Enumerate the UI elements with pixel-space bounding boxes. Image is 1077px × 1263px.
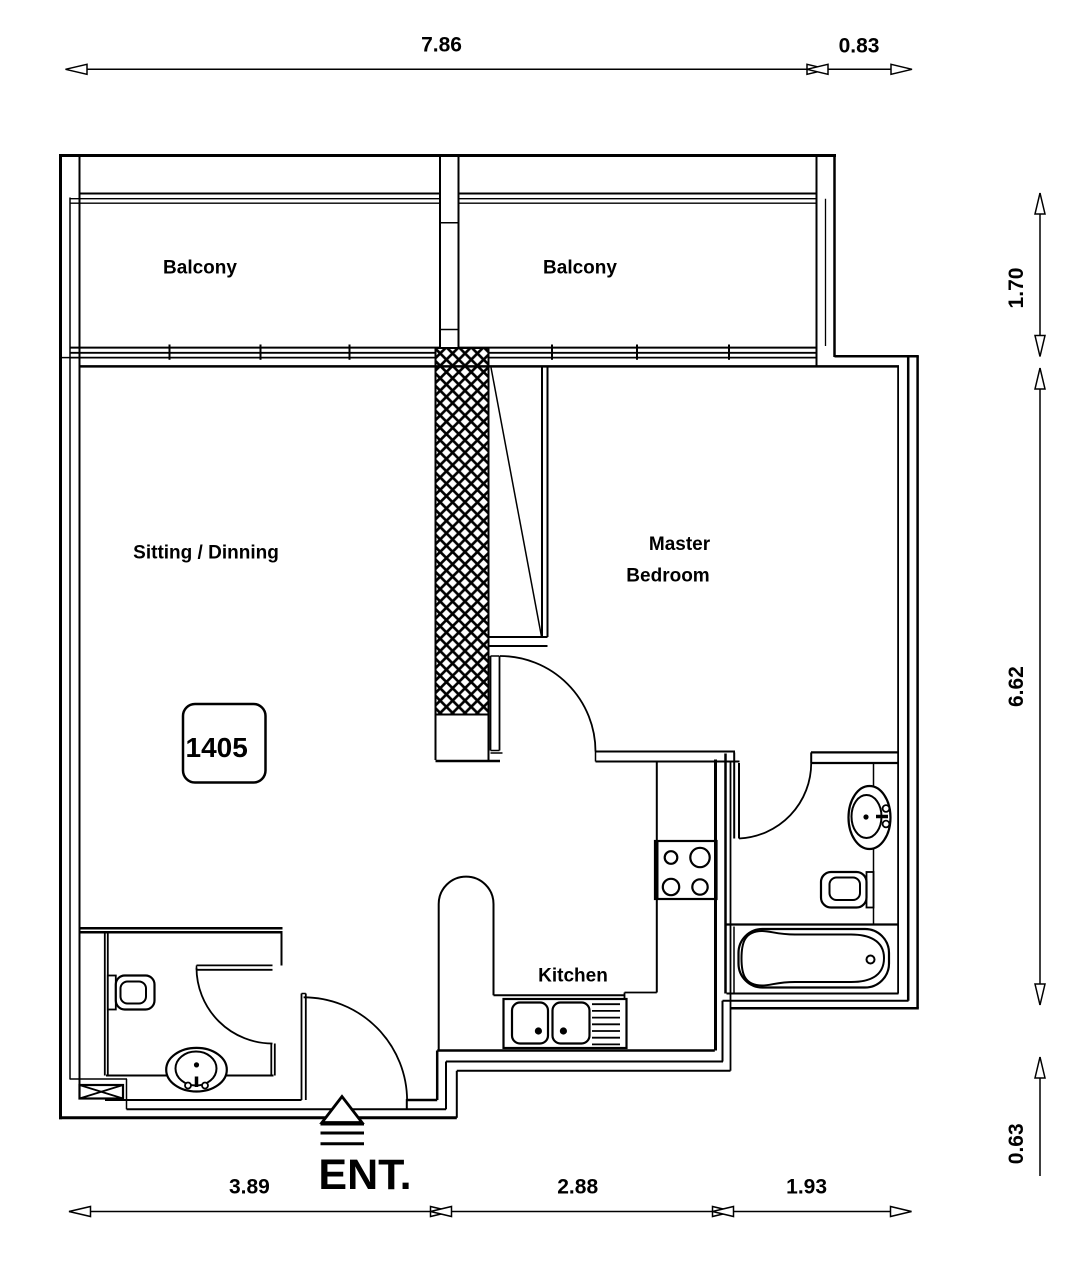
svg-text:Balcony: Balcony [543, 257, 617, 278]
svg-text:1405: 1405 [186, 732, 248, 763]
svg-text:2.88: 2.88 [557, 1176, 598, 1199]
svg-text:0.83: 0.83 [839, 35, 880, 58]
svg-text:ENT.: ENT. [318, 1151, 411, 1199]
svg-text:6.62: 6.62 [1005, 666, 1028, 707]
svg-text:7.86: 7.86 [421, 34, 462, 57]
svg-text:Bedroom: Bedroom [626, 566, 709, 587]
svg-text:1.93: 1.93 [786, 1176, 827, 1199]
svg-text:Master: Master [649, 534, 711, 555]
svg-text:Sitting / Dinning: Sitting / Dinning [133, 543, 279, 564]
svg-text:Balcony: Balcony [163, 257, 237, 278]
svg-text:3.89: 3.89 [229, 1176, 270, 1199]
svg-text:1.70: 1.70 [1005, 268, 1028, 309]
svg-text:0.63: 0.63 [1005, 1123, 1028, 1164]
svg-text:Kitchen: Kitchen [538, 966, 608, 987]
